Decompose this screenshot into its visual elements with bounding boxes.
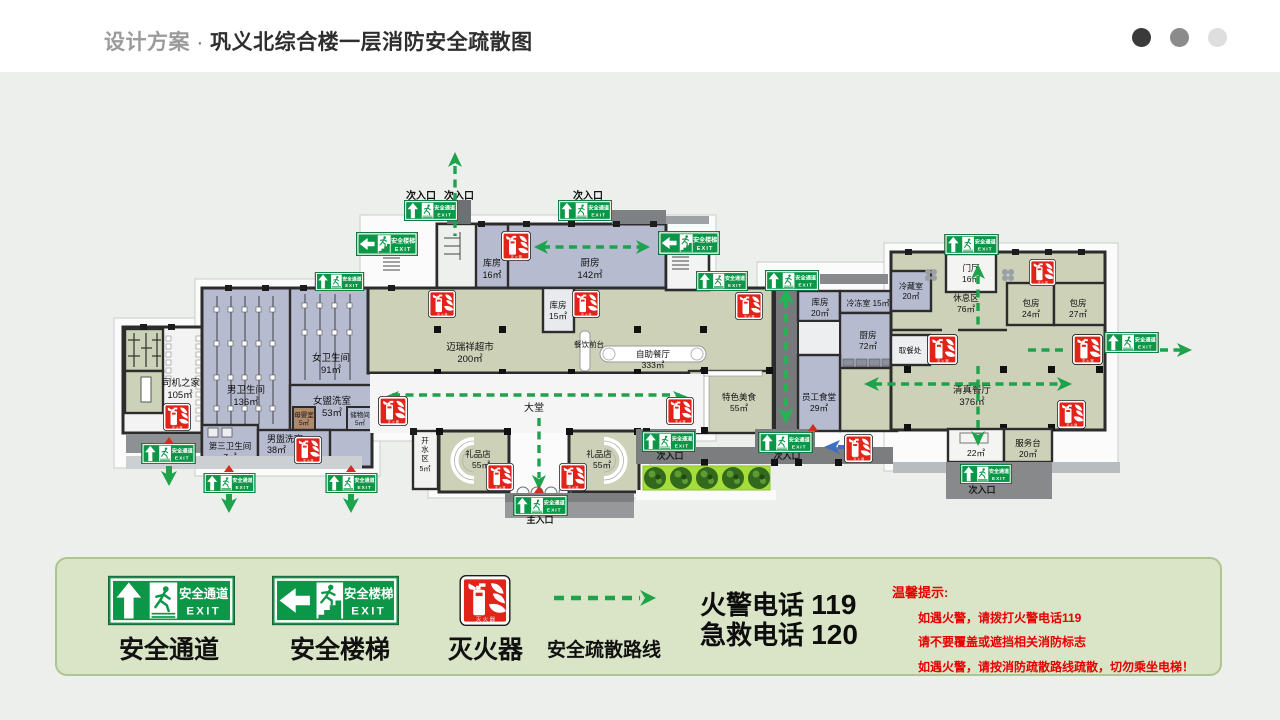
svg-text:376㎡: 376㎡: [959, 397, 985, 408]
svg-text:5㎡: 5㎡: [355, 418, 366, 427]
svg-text:礼品店: 礼品店: [586, 449, 612, 459]
svg-text:91㎡: 91㎡: [321, 365, 342, 376]
svg-text:53㎡: 53㎡: [322, 408, 343, 419]
svg-text:厨房: 厨房: [580, 257, 599, 269]
svg-text:库房: 库房: [483, 257, 501, 268]
svg-text:142㎡: 142㎡: [577, 270, 603, 281]
svg-text:冷冻室 15㎡: 冷冻室 15㎡: [846, 298, 889, 308]
svg-text:136㎡: 136㎡: [233, 397, 259, 408]
svg-text:厨房: 厨房: [859, 330, 876, 340]
svg-text:72㎡: 72㎡: [859, 341, 877, 351]
svg-text:区: 区: [421, 454, 429, 463]
svg-text:包房: 包房: [1069, 298, 1086, 308]
svg-text:休息区: 休息区: [953, 293, 979, 303]
svg-text:服务台: 服务台: [1015, 438, 1041, 448]
svg-text:女卫生间: 女卫生间: [312, 352, 350, 364]
svg-text:76㎡: 76㎡: [957, 304, 975, 314]
svg-text:开: 开: [421, 436, 429, 445]
svg-text:储物间: 储物间: [350, 410, 370, 419]
svg-text:第三卫生间: 第三卫生间: [209, 441, 252, 451]
svg-text:55㎡: 55㎡: [593, 460, 611, 470]
svg-text:27㎡: 27㎡: [1069, 309, 1087, 319]
svg-text:男卫生间: 男卫生间: [227, 384, 265, 396]
svg-text:包房: 包房: [1022, 298, 1039, 308]
svg-text:5㎡: 5㎡: [420, 465, 431, 473]
svg-text:司机之家: 司机之家: [162, 377, 201, 389]
svg-text:餐饮前台: 餐饮前台: [574, 339, 604, 349]
svg-text:20㎡: 20㎡: [903, 292, 920, 301]
svg-text:24㎡: 24㎡: [1022, 309, 1040, 319]
svg-text:取餐处: 取餐处: [899, 345, 922, 355]
svg-text:母婴室: 母婴室: [294, 410, 314, 419]
svg-text:大堂: 大堂: [524, 401, 544, 414]
svg-text:333㎡: 333㎡: [642, 360, 665, 370]
svg-text:29㎡: 29㎡: [810, 403, 828, 413]
svg-text:礼品店: 礼品店: [465, 449, 491, 459]
svg-text:迈瑞祥超市: 迈瑞祥超市: [446, 341, 494, 353]
svg-text:22㎡: 22㎡: [967, 448, 985, 458]
svg-text:自助餐厅: 自助餐厅: [636, 349, 671, 359]
svg-text:200㎡: 200㎡: [457, 354, 483, 365]
svg-text:5㎡: 5㎡: [299, 418, 310, 427]
svg-text:16㎡: 16㎡: [482, 270, 501, 280]
svg-text:15㎡: 15㎡: [549, 311, 567, 321]
svg-text:冷藏室: 冷藏室: [899, 281, 923, 291]
svg-text:库房: 库房: [811, 297, 828, 307]
svg-text:55㎡: 55㎡: [730, 403, 748, 413]
svg-text:次入口: 次入口: [968, 484, 995, 495]
svg-text:库房: 库房: [549, 300, 566, 310]
svg-text:105㎡: 105㎡: [167, 390, 193, 401]
svg-text:20㎡: 20㎡: [811, 308, 829, 318]
svg-text:特色美食: 特色美食: [722, 392, 757, 402]
svg-text:20㎡: 20㎡: [1019, 449, 1037, 459]
svg-text:女盥洗室: 女盥洗室: [313, 395, 351, 407]
svg-text:水: 水: [421, 444, 429, 454]
svg-text:员工食堂: 员工食堂: [802, 392, 836, 402]
svg-text:38㎡: 38㎡: [267, 445, 286, 455]
